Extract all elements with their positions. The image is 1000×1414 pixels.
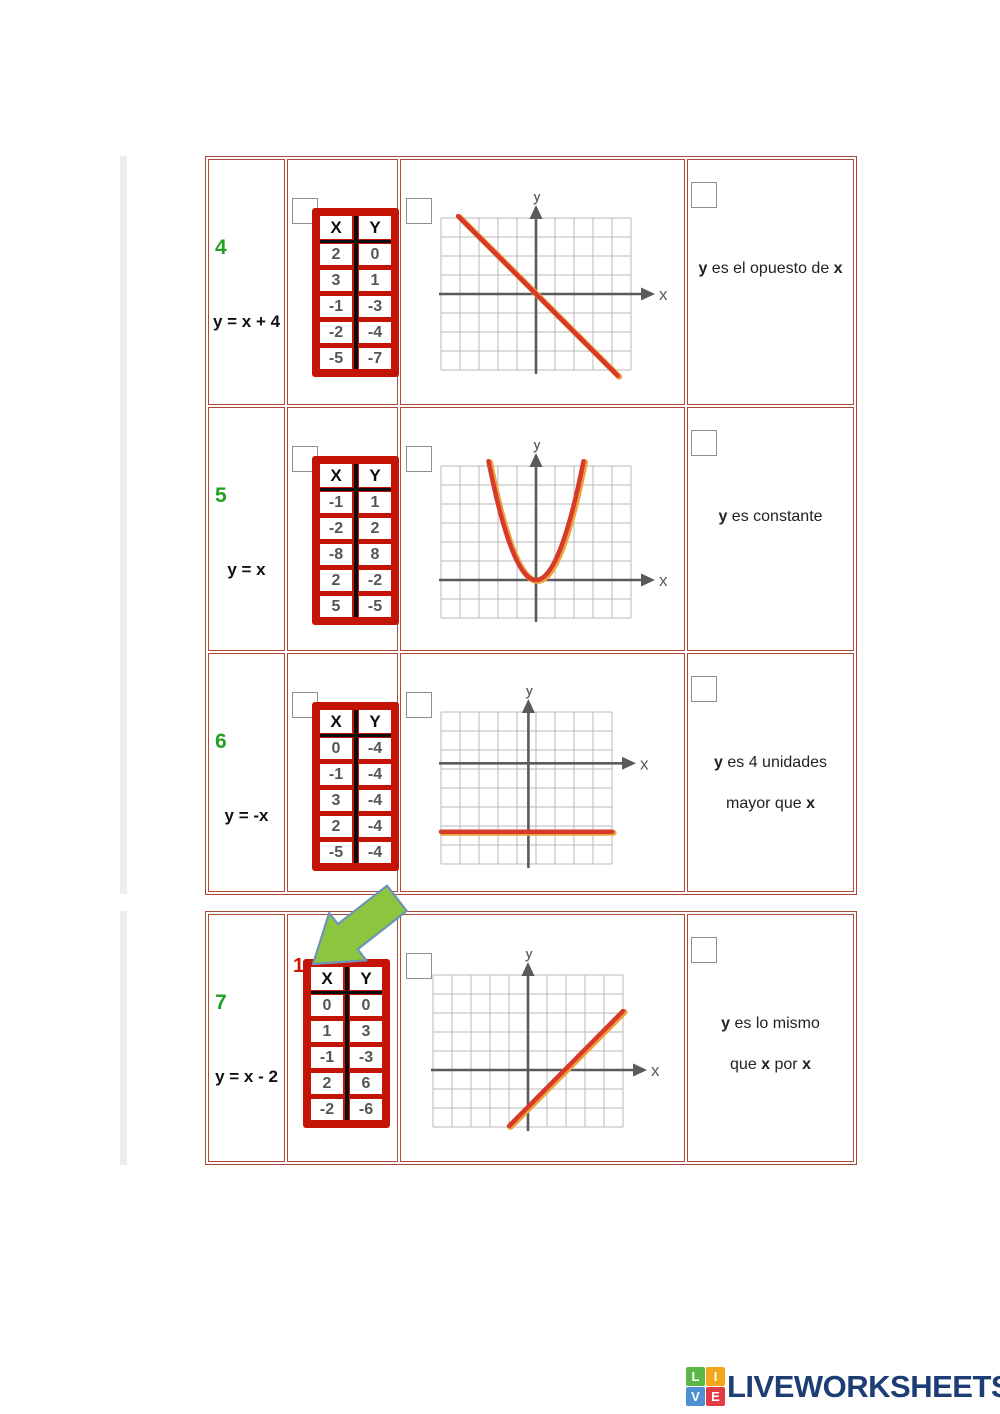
logo-tile-e: E xyxy=(706,1387,725,1406)
item-equation: y = x - 2 xyxy=(209,1067,284,1087)
xy-header: X xyxy=(320,710,352,733)
graph-curve xyxy=(458,216,618,376)
liveworksheets-logo-icon: LIVE xyxy=(686,1367,725,1406)
xy-table: XY0-4-1-43-42-4-5-4 xyxy=(312,702,399,871)
xy-value: 3 xyxy=(320,270,352,291)
xy-value: 1 xyxy=(359,492,391,513)
xy-column-divider xyxy=(354,710,358,863)
xy-value: -1 xyxy=(320,492,352,513)
xy-value: -2 xyxy=(311,1099,343,1120)
graph-option-cell-4: xy xyxy=(400,159,685,405)
xy-value: 1 xyxy=(311,1021,343,1042)
xy-value: -4 xyxy=(359,738,391,759)
logo-tile-v: V xyxy=(686,1387,705,1406)
y-axis-label: y xyxy=(533,194,542,205)
y-axis-label: y xyxy=(525,688,534,699)
xy-value: -1 xyxy=(320,296,352,317)
xy-header-divider xyxy=(311,991,382,994)
xy-value: 0 xyxy=(311,995,343,1016)
text-option-cell-5: y es constante xyxy=(687,407,854,651)
xy-value: -5 xyxy=(359,596,391,617)
green-arrow-icon xyxy=(295,878,447,990)
x-axis-label: x xyxy=(640,754,648,773)
description-text: y es lo mismoque x por x xyxy=(688,1003,853,1085)
x-axis-label: x xyxy=(659,285,667,304)
x-axis-label: x xyxy=(651,1061,659,1080)
page-margin-strip xyxy=(120,911,127,1165)
xy-table: XY2031-1-3-2-4-5-7 xyxy=(312,208,399,377)
description-line: mayor que x xyxy=(688,783,853,824)
logo-tile-l: L xyxy=(686,1367,705,1386)
xy-value: -2 xyxy=(359,570,391,591)
xy-header: X xyxy=(320,216,352,239)
item-equation: y = x xyxy=(209,560,284,580)
xy-value: 3 xyxy=(350,1021,382,1042)
graph: xy xyxy=(437,194,667,384)
item-cell-5: 5 y = x xyxy=(208,407,285,651)
text-option-cell-7: y es lo mismoque x por x xyxy=(687,914,854,1162)
answer-checkbox[interactable] xyxy=(691,676,717,702)
xy-value: -3 xyxy=(359,296,391,317)
xy-value: 5 xyxy=(320,596,352,617)
answer-checkbox[interactable] xyxy=(406,198,432,224)
description-text: y es constante xyxy=(688,496,853,537)
item-equation: y = x + 4 xyxy=(209,312,284,332)
xy-value: 2 xyxy=(359,518,391,539)
description-line: y es 4 unidades xyxy=(688,742,853,783)
item-cell-6: 6 y = -x xyxy=(208,653,285,892)
item-cell-4: 4 y = x + 4 xyxy=(208,159,285,405)
xy-value: -4 xyxy=(359,790,391,811)
item-cell-7: 7 y = x - 2 xyxy=(208,914,285,1162)
answer-checkbox[interactable] xyxy=(691,937,717,963)
xy-header-divider xyxy=(320,488,391,491)
item-number: 6 xyxy=(215,730,227,754)
worksheet-table-rows-4-6: 4 y = x + 4 XY2031-1-3-2-4-5-7 xy y es e… xyxy=(205,156,857,895)
xy-value: -3 xyxy=(350,1047,382,1068)
xy-header: Y xyxy=(359,464,391,487)
xy-value: 8 xyxy=(359,544,391,565)
answer-checkbox[interactable] xyxy=(691,182,717,208)
xy-header: X xyxy=(320,464,352,487)
text-option-cell-4: y es el opuesto de x xyxy=(687,159,854,405)
xy-header-divider xyxy=(320,734,391,737)
x-axis-label: x xyxy=(659,571,667,590)
xy-value: -6 xyxy=(350,1099,382,1120)
xy-header: Y xyxy=(359,216,391,239)
xy-value: 0 xyxy=(320,738,352,759)
xy-value: 6 xyxy=(350,1073,382,1094)
graph: xy xyxy=(429,951,659,1141)
item-equation: y = -x xyxy=(209,806,284,826)
description-line: y es el opuesto de x xyxy=(688,248,853,289)
xy-value: -4 xyxy=(359,816,391,837)
graph: xy xyxy=(437,688,648,878)
xy-value: 0 xyxy=(359,244,391,265)
item-number: 4 xyxy=(215,236,227,260)
graph: xy xyxy=(437,442,667,632)
text-option-cell-6: y es 4 unidadesmayor que x xyxy=(687,653,854,892)
xy-column-divider xyxy=(354,216,358,369)
description-text: y es 4 unidadesmayor que x xyxy=(688,742,853,824)
xy-value: 2 xyxy=(320,570,352,591)
xy-value: 0 xyxy=(350,995,382,1016)
page-margin-strip xyxy=(120,156,127,894)
table-option-cell-5: XY-11-22-882-25-5 xyxy=(287,407,398,651)
xy-value: 2 xyxy=(311,1073,343,1094)
xy-header-divider xyxy=(320,240,391,243)
xy-value: -5 xyxy=(320,842,352,863)
y-axis-label: y xyxy=(533,442,542,453)
xy-value: -4 xyxy=(359,322,391,343)
graph-option-cell-6: xy xyxy=(400,653,685,892)
xy-value: -4 xyxy=(359,764,391,785)
xy-value: -4 xyxy=(359,842,391,863)
xy-value: -2 xyxy=(320,322,352,343)
xy-column-divider xyxy=(354,464,358,617)
xy-value: -7 xyxy=(359,348,391,369)
xy-value: 1 xyxy=(359,270,391,291)
answer-checkbox[interactable] xyxy=(691,430,717,456)
description-line: y es constante xyxy=(688,496,853,537)
xy-value: -1 xyxy=(311,1047,343,1068)
item-number: 5 xyxy=(215,484,227,508)
xy-value: 3 xyxy=(320,790,352,811)
xy-value: 2 xyxy=(320,244,352,265)
answer-checkbox[interactable] xyxy=(406,446,432,472)
y-axis-label: y xyxy=(525,951,534,962)
xy-value: 2 xyxy=(320,816,352,837)
item-number: 7 xyxy=(215,991,227,1015)
xy-header: Y xyxy=(359,710,391,733)
description-text: y es el opuesto de x xyxy=(688,248,853,289)
logo-tile-i: I xyxy=(706,1367,725,1386)
liveworksheets-logo: LIVE LIVEWORKSHEETS xyxy=(686,1367,1000,1406)
table-option-cell-6: XY0-4-1-43-42-4-5-4 xyxy=(287,653,398,892)
answer-checkbox[interactable] xyxy=(406,692,432,718)
table-option-cell-4: XY2031-1-3-2-4-5-7 xyxy=(287,159,398,405)
xy-value: -8 xyxy=(320,544,352,565)
liveworksheets-logo-text: LIVEWORKSHEETS xyxy=(727,1369,1000,1405)
description-line: y es lo mismo xyxy=(688,1003,853,1044)
xy-value: -5 xyxy=(320,348,352,369)
xy-table: XY-11-22-882-25-5 xyxy=(312,456,399,625)
description-line: que x por x xyxy=(688,1044,853,1085)
xy-value: -1 xyxy=(320,764,352,785)
xy-value: -2 xyxy=(320,518,352,539)
graph-option-cell-5: xy xyxy=(400,407,685,651)
